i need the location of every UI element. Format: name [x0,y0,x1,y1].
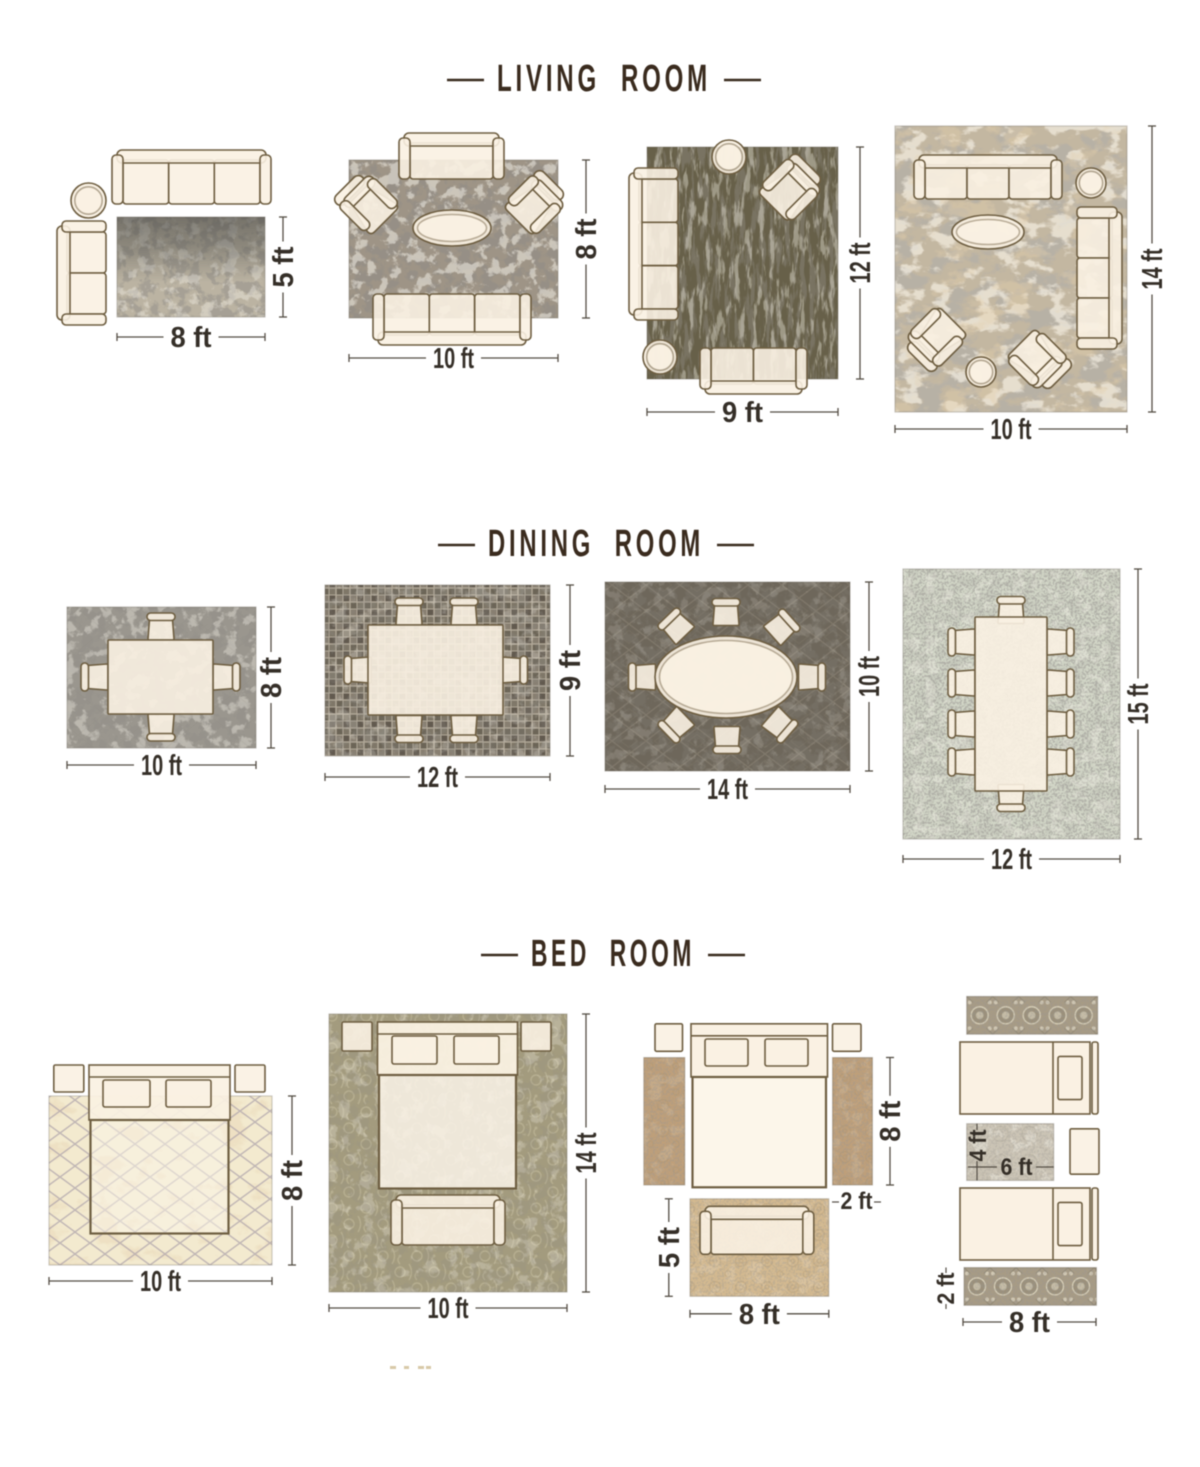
svg-text:BED ROOM: BED ROOM [531,933,695,975]
svg-text:9 ft: 9 ft [555,650,587,691]
svg-text:5 ft: 5 ft [268,246,300,287]
svg-text:8 ft: 8 ft [571,218,603,259]
svg-text:6 ft: 6 ft [1001,1154,1033,1181]
svg-text:14 ft: 14 ft [1137,248,1169,289]
svg-text:14 ft: 14 ft [707,774,748,806]
svg-text:14 ft: 14 ft [571,1132,603,1173]
svg-text:8 ft: 8 ft [256,657,288,698]
svg-text:10 ft: 10 ft [854,656,886,697]
svg-text:4 ft: 4 ft [965,1129,992,1161]
svg-text:DINING ROOM: DINING ROOM [488,523,704,565]
svg-text:8 ft: 8 ft [875,1100,907,1141]
svg-text:8 ft: 8 ft [1009,1307,1050,1339]
svg-text:10 ft: 10 ft [141,750,182,782]
svg-text:8 ft: 8 ft [277,1160,309,1201]
svg-text:8 ft: 8 ft [171,322,212,354]
svg-text:10 ft: 10 ft [991,414,1032,446]
svg-text:12 ft: 12 ft [991,844,1032,876]
svg-text:10 ft: 10 ft [140,1266,181,1298]
svg-text:12 ft: 12 ft [845,242,877,283]
svg-text:LIVING ROOM: LIVING ROOM [497,58,711,100]
svg-text:10 ft: 10 ft [433,343,474,375]
svg-text:9 ft: 9 ft [722,397,763,429]
svg-text:12 ft: 12 ft [417,762,458,794]
svg-text:2 ft: 2 ft [841,1188,873,1215]
svg-text:15 ft: 15 ft [1123,683,1155,724]
svg-text:5 ft: 5 ft [654,1227,686,1268]
svg-text:2 ft: 2 ft [933,1272,960,1304]
svg-text:10 ft: 10 ft [428,1293,469,1325]
svg-text:8 ft: 8 ft [739,1299,780,1331]
